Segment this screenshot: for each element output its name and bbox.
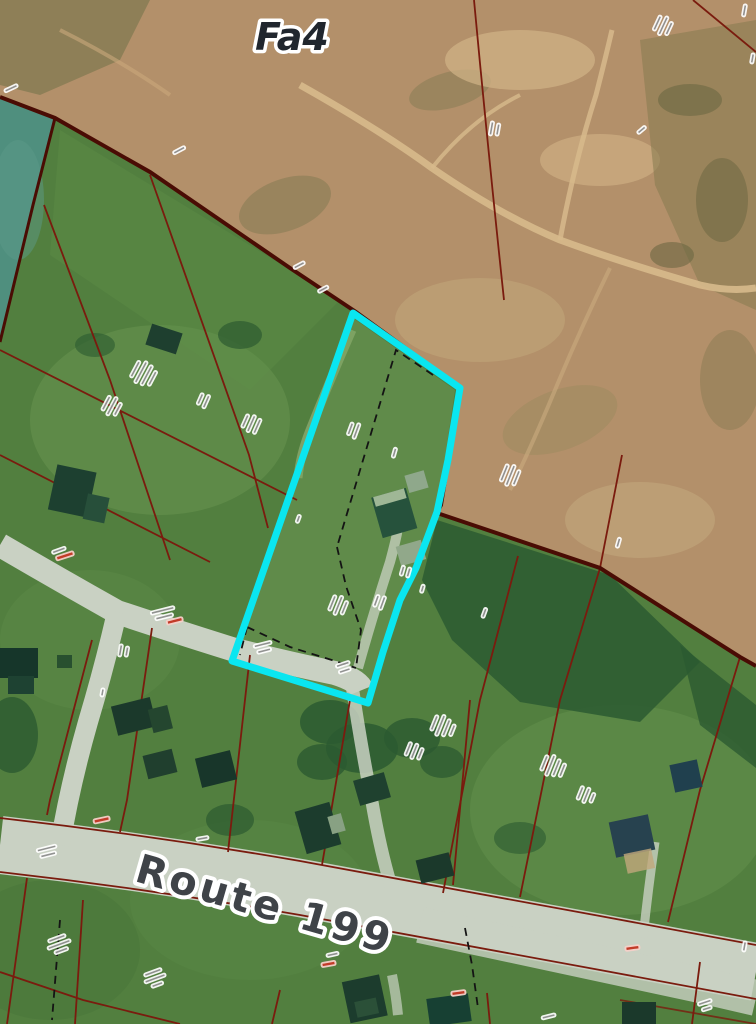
aerial-map-canvas[interactable]: Fa4 Route 199: [0, 0, 756, 1024]
below-route-driveway: [392, 975, 398, 1015]
map-viewport[interactable]: Fa4 Route 199: [0, 0, 756, 1024]
house: [669, 759, 702, 792]
zone-label-fa4: Fa4: [255, 15, 329, 59]
shed: [57, 655, 72, 668]
house: [622, 1002, 656, 1024]
